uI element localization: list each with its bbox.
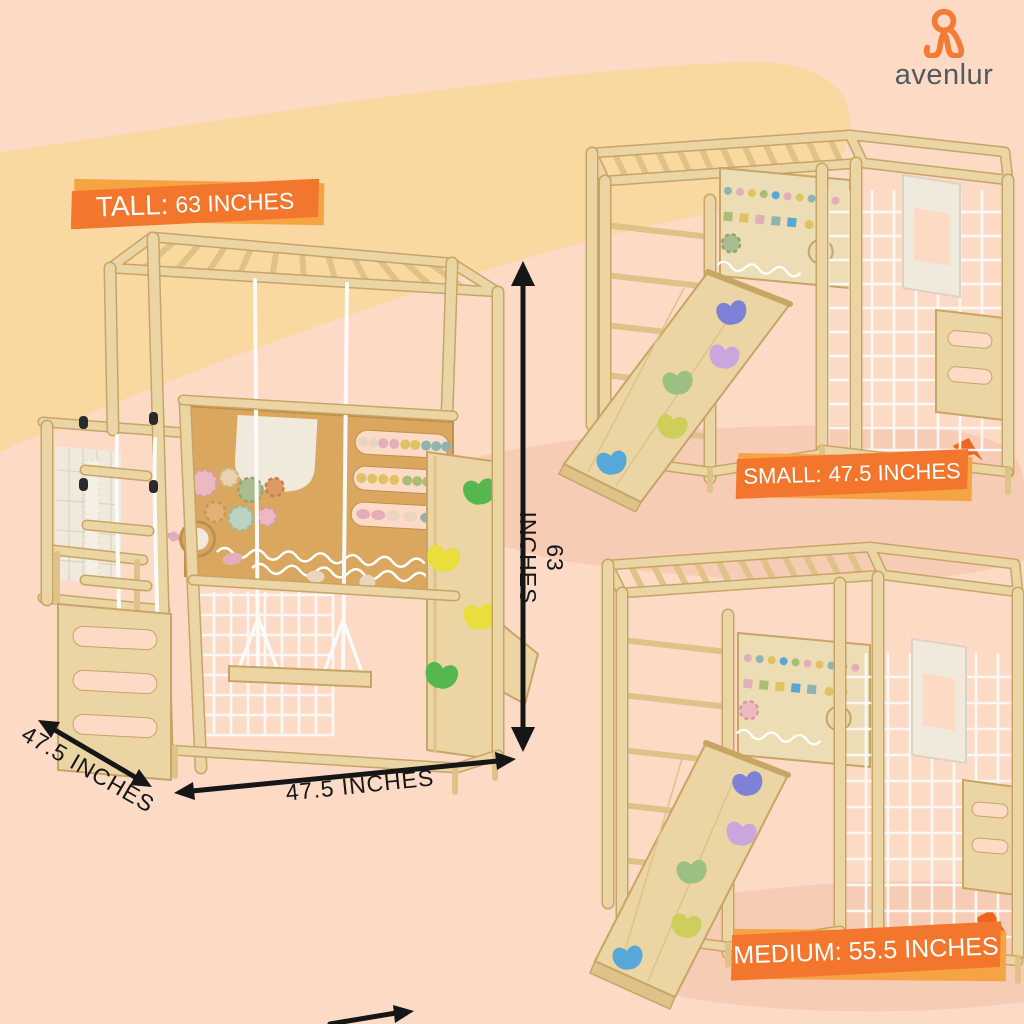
small-window-panel — [903, 175, 960, 297]
tall-banner: TALL: 63 INCHES — [69, 179, 320, 230]
infographic: avenlur — [0, 0, 1024, 1024]
medium-banner-value: 55.5 INCHES — [848, 932, 999, 966]
medium-banner: MEDIUM: 55.5 INCHES — [729, 921, 1003, 980]
small-banner-value: 47.5 INCHES — [828, 458, 961, 487]
brand-name: avenlur — [878, 59, 1010, 92]
small-activity-panel — [717, 168, 850, 288]
brand-logo: avenlur — [878, 8, 1010, 92]
tall-banner-value: 63 INCHES — [175, 187, 295, 218]
medium-slot-panel — [963, 780, 1016, 895]
slide — [499, 622, 538, 704]
height-dimension-label: 63 INCHES — [514, 498, 568, 618]
avenlur-logo-icon — [921, 8, 967, 58]
tall-activity-panel — [165, 406, 453, 595]
medium-window-panel — [912, 639, 966, 763]
medium-roof — [608, 547, 1018, 593]
small-banner-label: SMALL: — [743, 462, 822, 490]
medium-banner-label: MEDIUM: — [733, 937, 842, 970]
medium-activity-panel — [737, 633, 870, 767]
small-roof — [592, 135, 1008, 181]
small-banner: SMALL: 47.5 INCHES — [734, 449, 969, 499]
swing-seat — [229, 666, 371, 687]
tall-monkey-bars — [110, 237, 498, 292]
tall-playset-illustration — [25, 220, 547, 802]
tall-climbing-net — [195, 592, 334, 736]
tall-banner-label: TALL: — [95, 189, 169, 224]
small-slot-panel — [936, 310, 1004, 420]
